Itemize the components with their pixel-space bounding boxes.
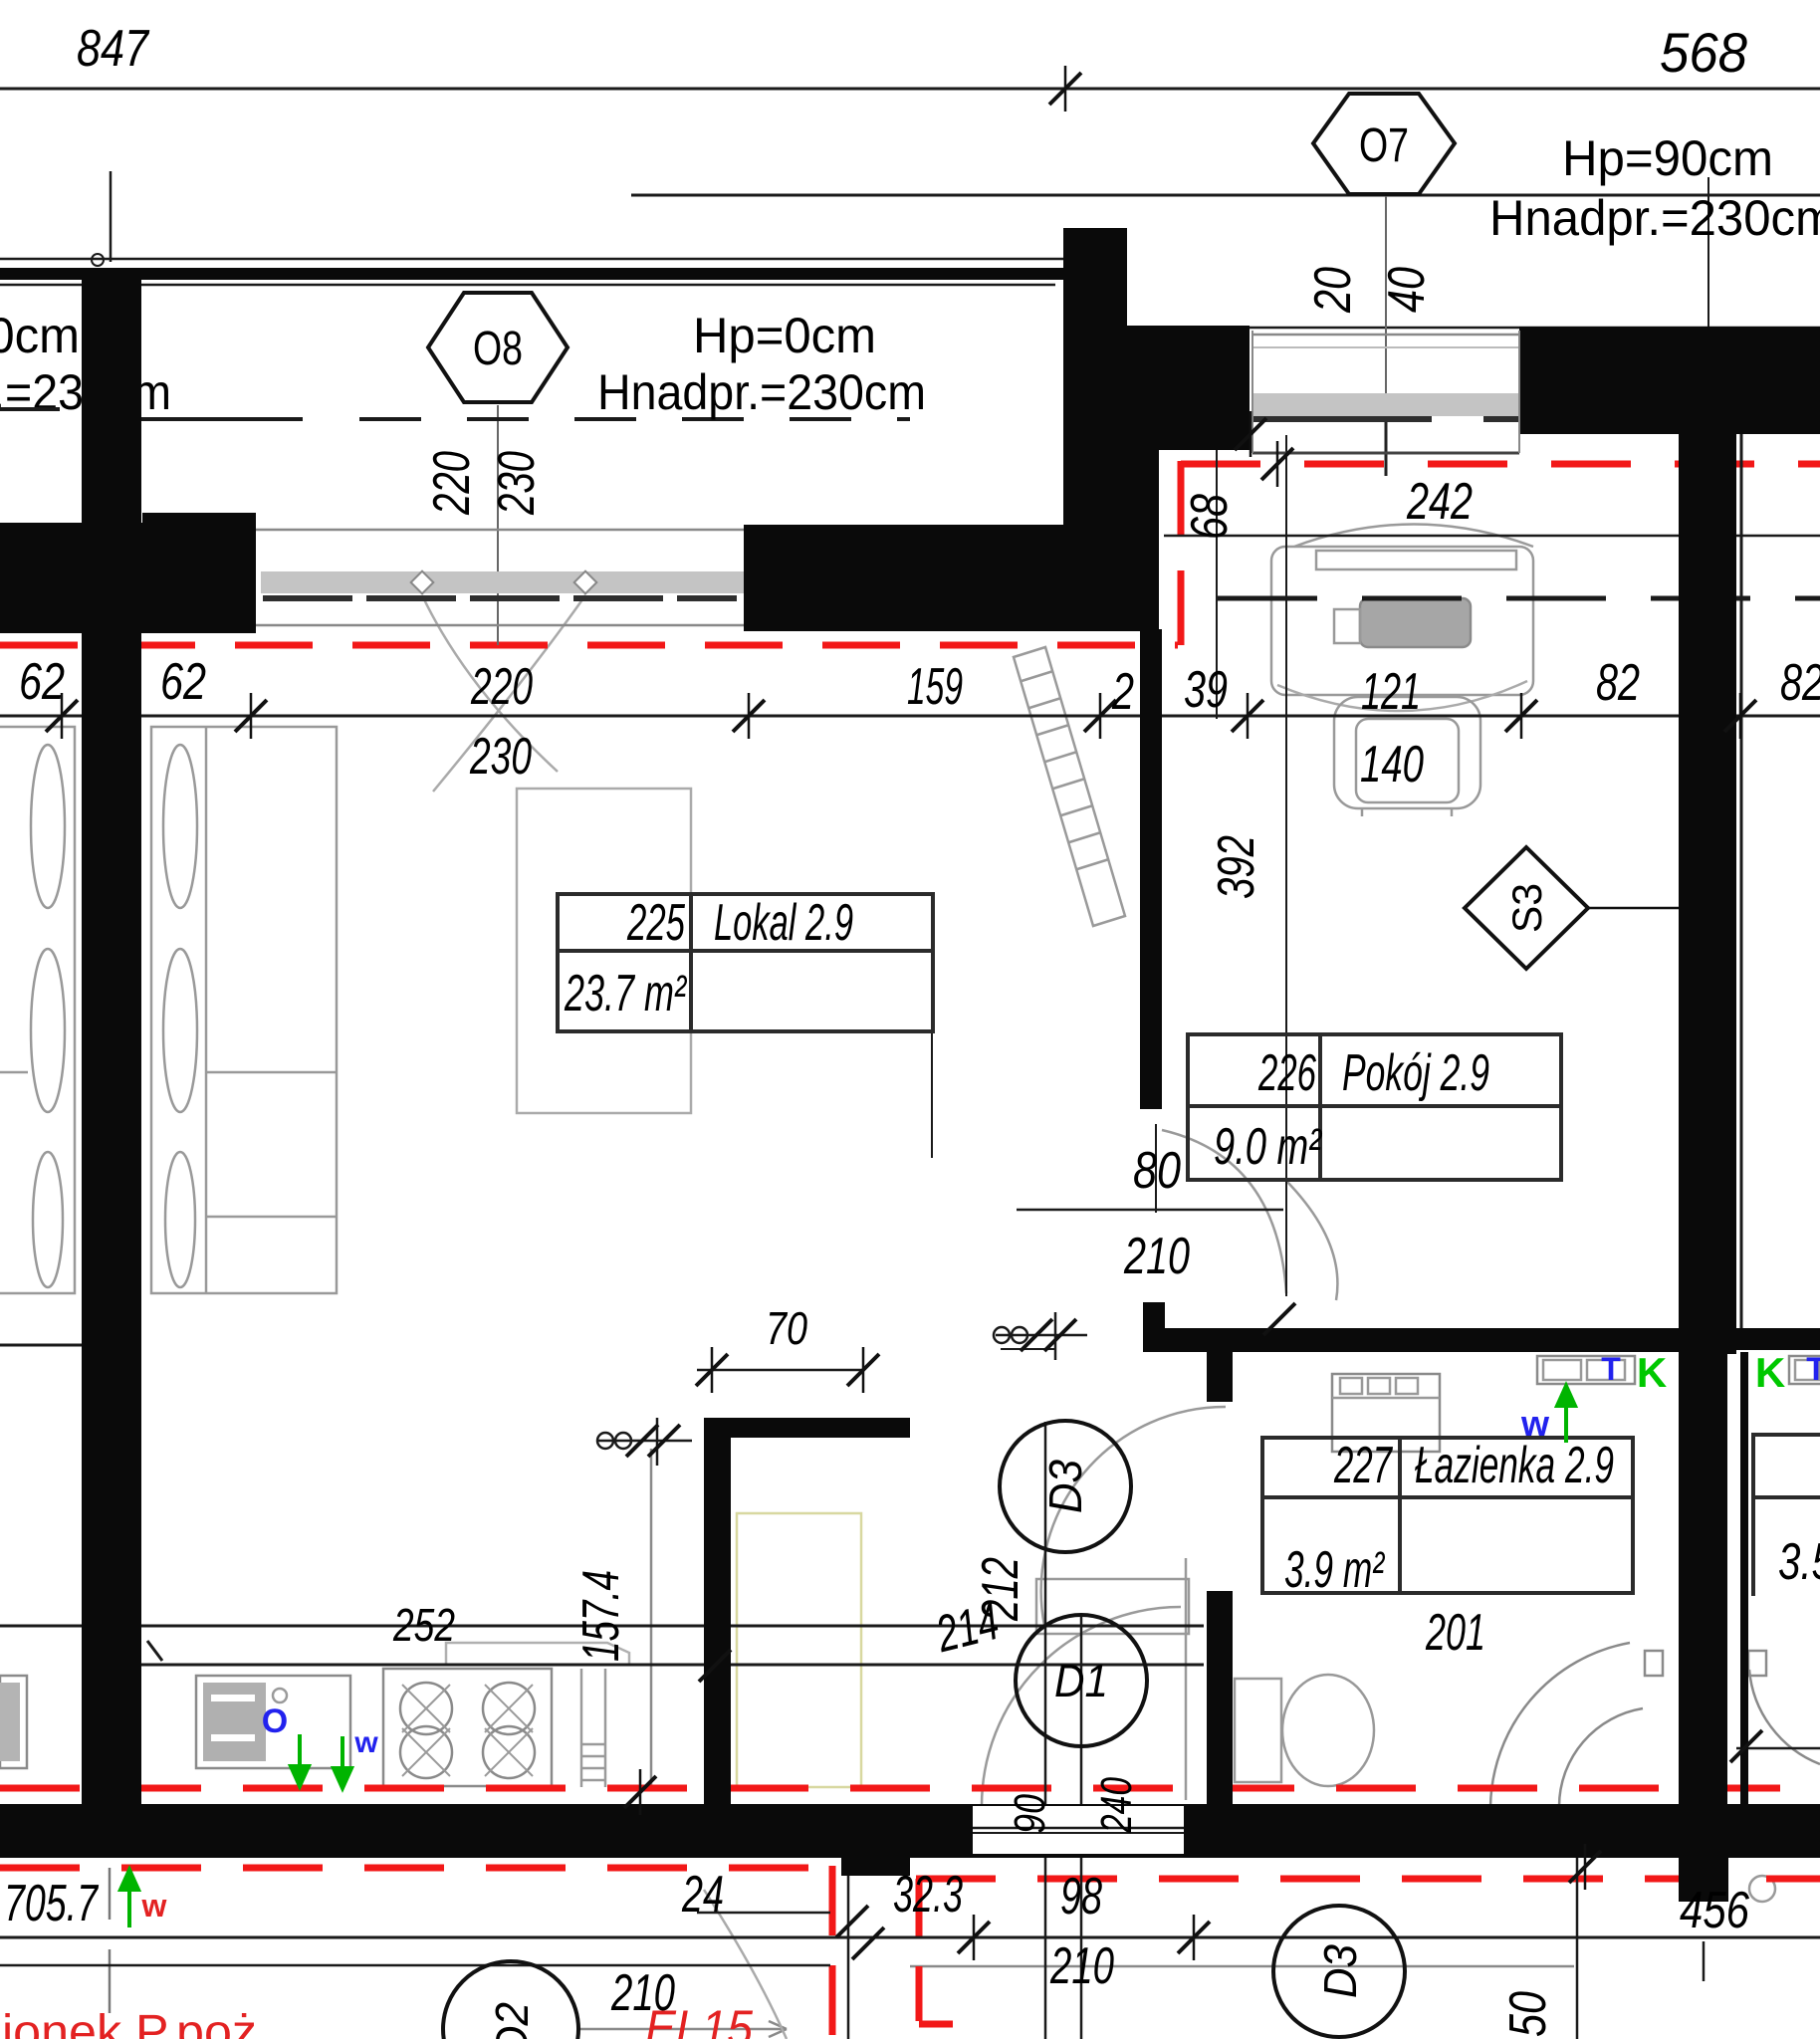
svg-text:240: 240 xyxy=(1092,1777,1141,1834)
svg-text:Hnadpr.=230cm: Hnadpr.=230cm xyxy=(597,364,926,420)
svg-text:Hnadpr.=230cm: Hnadpr.=230cm xyxy=(1489,190,1820,246)
svg-text:ionek P.poż: ionek P.poż xyxy=(2,2006,257,2039)
svg-text:2: 2 xyxy=(1111,663,1134,721)
svg-text:O7: O7 xyxy=(1359,119,1409,172)
svg-text:220: 220 xyxy=(470,658,533,716)
svg-text:O8: O8 xyxy=(473,323,523,375)
svg-text:242: 242 xyxy=(1406,473,1473,531)
svg-text:230: 230 xyxy=(488,451,546,516)
svg-text:D1: D1 xyxy=(1054,1655,1108,1706)
svg-text:Łazienka 2.9: Łazienka 2.9 xyxy=(1415,1437,1614,1494)
svg-text:82: 82 xyxy=(1596,654,1640,712)
svg-text:50: 50 xyxy=(1499,1991,1557,2037)
svg-text:3.5: 3.5 xyxy=(1778,1533,1820,1591)
svg-text:210: 210 xyxy=(1123,1228,1190,1285)
svg-text:201: 201 xyxy=(1425,1604,1485,1662)
svg-text:70: 70 xyxy=(766,1302,807,1354)
svg-text:90: 90 xyxy=(1006,1794,1054,1834)
svg-text:O: O xyxy=(262,1702,288,1740)
svg-text:68: 68 xyxy=(1181,494,1239,540)
svg-text:D3: D3 xyxy=(1039,1460,1091,1513)
svg-text:225: 225 xyxy=(626,894,685,952)
svg-text:T: T xyxy=(1601,1351,1621,1387)
svg-text:20: 20 xyxy=(1304,267,1362,314)
svg-text:24: 24 xyxy=(681,1866,724,1924)
svg-text:D2: D2 xyxy=(486,2002,538,2039)
svg-text:40: 40 xyxy=(1378,267,1436,313)
svg-text:82: 82 xyxy=(1780,654,1820,712)
svg-text:D3: D3 xyxy=(1314,1944,1366,1998)
svg-text:98: 98 xyxy=(1060,1868,1102,1926)
svg-text:23.7 m²: 23.7 m² xyxy=(564,965,687,1022)
svg-text:159: 159 xyxy=(907,658,963,716)
svg-text:140: 140 xyxy=(1360,736,1424,793)
svg-text:847: 847 xyxy=(77,20,150,78)
svg-text:39: 39 xyxy=(1184,661,1228,719)
svg-text:392: 392 xyxy=(1208,835,1265,899)
svg-text:62: 62 xyxy=(160,653,206,711)
svg-text:227: 227 xyxy=(1333,1437,1393,1494)
svg-text:K: K xyxy=(1755,1349,1785,1396)
svg-text:w: w xyxy=(141,1888,167,1924)
svg-text:Pokój 2.9: Pokój 2.9 xyxy=(1342,1044,1489,1102)
svg-text:w: w xyxy=(1520,1403,1550,1444)
svg-text:226: 226 xyxy=(1257,1044,1316,1102)
svg-text:S3: S3 xyxy=(1503,883,1550,933)
svg-text:9.0 m²: 9.0 m² xyxy=(1214,1118,1322,1176)
svg-text:230: 230 xyxy=(469,728,532,786)
svg-text:w: w xyxy=(353,1726,378,1759)
svg-text:EL15: EL15 xyxy=(645,2000,753,2039)
svg-text:3.9 m²: 3.9 m² xyxy=(1284,1541,1385,1599)
svg-text:Hp=0cm: Hp=0cm xyxy=(693,308,876,363)
svg-text:157.4: 157.4 xyxy=(572,1570,630,1662)
svg-text:80: 80 xyxy=(1133,1142,1181,1200)
svg-text:Hp=0cm: Hp=0cm xyxy=(0,308,80,363)
svg-text:705.7: 705.7 xyxy=(4,1875,99,1932)
svg-text:210: 210 xyxy=(1049,1937,1114,1995)
svg-text:32.3: 32.3 xyxy=(893,1866,963,1924)
svg-text:456: 456 xyxy=(1680,1882,1749,1939)
svg-text:T: T xyxy=(1806,1351,1820,1387)
svg-text:Hp=90cm: Hp=90cm xyxy=(1562,130,1773,186)
svg-text:62: 62 xyxy=(19,653,65,711)
svg-text:Lokal 2.9: Lokal 2.9 xyxy=(714,894,853,952)
svg-text:568: 568 xyxy=(1660,21,1747,84)
svg-text:252: 252 xyxy=(392,1599,455,1651)
svg-text:121: 121 xyxy=(1361,663,1421,721)
svg-text:K: K xyxy=(1637,1349,1667,1396)
svg-text:220: 220 xyxy=(423,451,481,516)
